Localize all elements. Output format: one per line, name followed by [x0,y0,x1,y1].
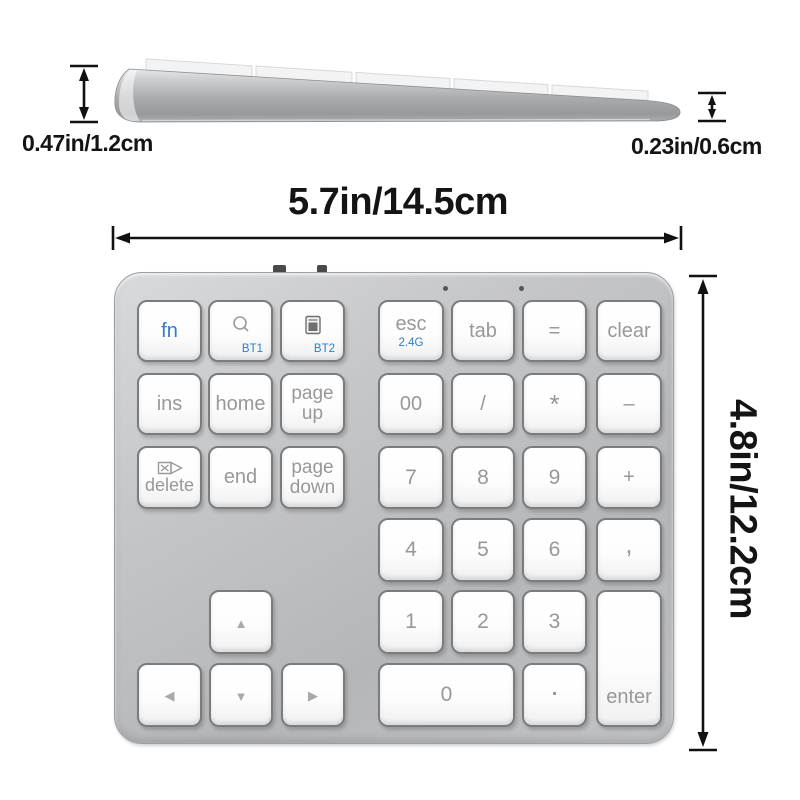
key-label: . [550,669,558,703]
height-label: 4.8in/12.2cm [721,399,764,619]
key-bt1: BT1 [208,300,273,362]
key-label: 9 [549,466,561,490]
key-multiply: * [522,373,587,435]
key-arrow-down: ▼ [209,663,273,727]
key-delete: delete [137,446,202,509]
key-num-9: 9 [522,446,587,509]
key-label: 2 [477,610,489,634]
key-label: end [224,466,257,489]
key-num-7: 7 [378,446,444,509]
product-image: 0.47in/1.2cm 0.23in/0.6cm 5.7in/14.5cm 4… [0,0,800,800]
key-label: home [215,393,265,416]
key-num-5: 5 [451,518,515,582]
key-label: delete [145,476,194,495]
key-decimal: . [522,663,587,727]
key-arrow-right: ▶ [281,663,345,727]
key-label: clear [607,320,650,343]
key-label: 1 [405,610,417,634]
key-comma: , [596,518,662,582]
key-label: 0 [441,683,453,707]
right-height-label: 0.23in/0.6cm [631,133,762,160]
key-label: 7 [405,466,417,490]
width-label: 5.7in/14.5cm [288,181,508,224]
key-label: , [625,529,632,560]
key-label: 3 [549,610,561,634]
key-clear: clear [596,300,662,362]
key-end: end [208,446,273,509]
key-num-6: 6 [522,518,587,582]
arrow-up-icon: ▲ [235,616,248,631]
key-page-down: page down [280,446,345,509]
key-home: home [208,373,273,435]
key-double-zero: 00 [378,373,444,435]
key-label: 5 [477,538,489,562]
key-num-2: 2 [451,590,515,654]
key-label: page down [290,458,336,498]
key-label: fn [161,320,178,343]
key-num-8: 8 [451,446,515,509]
key-sublabel: BT1 [242,343,263,355]
key-label: 00 [400,393,422,416]
key-label: page up [290,384,336,424]
key-page-up: page up [280,373,345,435]
height-arrow [689,276,717,750]
key-label: enter [606,686,652,709]
key-label: 8 [477,466,489,490]
arrow-left-icon: ◀ [165,688,175,704]
led-indicator-2 [519,286,524,291]
search-icon [230,314,252,336]
key-arrow-up: ▲ [209,590,273,654]
key-plus: + [596,446,662,509]
key-bt2: BT2 [280,300,345,362]
key-fn: fn [137,300,202,362]
calc-icon [304,315,322,335]
key-sublabel: 2.4G [399,337,424,349]
key-ins: ins [137,373,202,435]
right-height-arrow [698,93,726,121]
key-label: 4 [405,538,417,562]
arrow-right-icon: ▶ [308,688,318,704]
left-height-label: 0.47in/1.2cm [22,130,153,157]
key-minus: – [596,373,662,435]
key-arrow-left: ◀ [137,663,202,727]
del-icon [157,461,183,475]
key-label: * [549,389,559,420]
key-label: = [549,320,561,343]
key-num-1: 1 [378,590,444,654]
key-label: tab [469,320,497,343]
key-tab: tab [451,300,515,362]
key-label: + [623,466,635,489]
key-esc: esc2.4G [378,300,444,362]
key-label: 6 [549,538,561,562]
key-sublabel: BT2 [314,343,335,355]
key-num-4: 4 [378,518,444,582]
key-divide: / [451,373,515,435]
key-equals: = [522,300,587,362]
key-label: – [623,393,634,416]
left-height-arrow [70,66,98,122]
key-label: / [480,393,486,416]
key-label: esc [395,313,426,336]
key-label: ins [157,393,183,416]
arrow-down-icon: ▼ [235,689,248,704]
key-enter: enter [596,590,662,727]
key-num-0: 0 [378,663,515,727]
led-indicator-1 [443,286,448,291]
key-num-3: 3 [522,590,587,654]
width-arrow [113,226,681,250]
